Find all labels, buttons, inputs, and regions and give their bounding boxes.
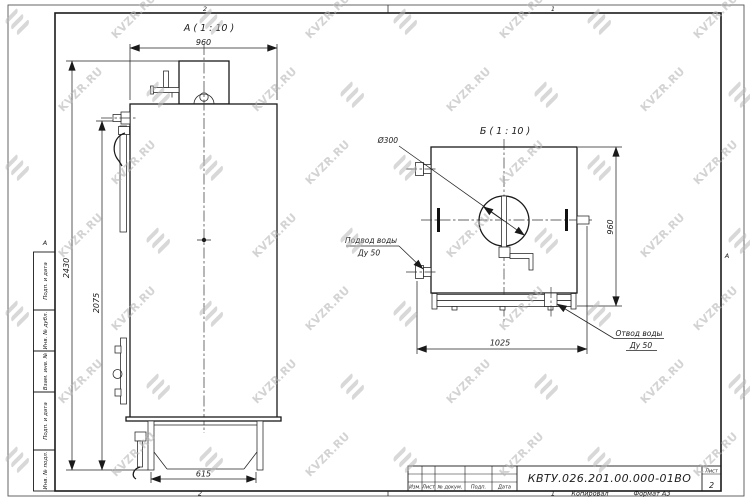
outlet-label-line1: Отвод воды bbox=[616, 329, 663, 338]
dim-2430: 2430 bbox=[62, 258, 71, 278]
right-stub bbox=[577, 216, 589, 224]
water-outlet-label: Отвод воды Ду 50 bbox=[557, 304, 664, 351]
col-doc: № докум. bbox=[437, 485, 463, 491]
view-a-title: А ( 1 : 10 ) bbox=[183, 23, 234, 34]
view-b: Б ( 1 : 10 ) bbox=[345, 126, 664, 354]
chimney-pipe-fitting bbox=[151, 71, 180, 98]
stamp-inv-dupl: Инв. № дубл. bbox=[43, 311, 49, 349]
dim-2075: 2075 bbox=[92, 293, 101, 313]
outlet-label-line2: Ду 50 bbox=[629, 341, 652, 350]
zone-top-2: 2 bbox=[203, 5, 207, 13]
stamp-sign-date-1: Подп. и дата bbox=[43, 262, 49, 300]
right-slot bbox=[565, 209, 568, 231]
dim-615: 615 bbox=[196, 470, 211, 479]
view-b-title: Б ( 1 : 10 ) bbox=[480, 126, 530, 137]
dim-960-right: 960 bbox=[606, 219, 615, 234]
left-slot bbox=[437, 208, 440, 232]
title-block: Изм. Лист № докум. Подп. Дата КВТУ.026.2… bbox=[408, 466, 721, 491]
drawing-page: 2 1 2 1 А А Копировал Формат А3 Подп. и … bbox=[0, 0, 750, 500]
hinge-assembly bbox=[113, 338, 127, 404]
dim-diameter-300: Ø300 bbox=[377, 136, 398, 145]
dim-960-top: 960 bbox=[196, 38, 211, 47]
lower-latch bbox=[133, 432, 146, 479]
stamp-sign-date-2: Подп. и дата bbox=[43, 402, 49, 440]
door-handle-assembly bbox=[114, 126, 129, 232]
col-date: Дата bbox=[497, 485, 511, 491]
base-pedestal bbox=[126, 417, 281, 470]
zone-row-right: А bbox=[724, 252, 729, 260]
side-stamps: Подп. и дата Инв. № дубл. Взам. инв. № П… bbox=[34, 252, 56, 491]
water-inlet-label: Подвод воды Ду 50 bbox=[345, 236, 423, 269]
inlet-label-line2: Ду 50 bbox=[357, 249, 380, 258]
drawing-designation: КВТУ.026.201.00.000-01ВО bbox=[528, 472, 692, 485]
drawing-sheet: 2 1 2 1 А А Копировал Формат А3 Подп. и … bbox=[0, 0, 750, 500]
col-sign: Подп. bbox=[471, 485, 486, 491]
sheet-label: Лист bbox=[704, 469, 719, 475]
zone-top-1: 1 bbox=[551, 5, 555, 13]
zone-bottom-2: 2 bbox=[198, 490, 202, 498]
dim-1025: 1025 bbox=[490, 339, 510, 348]
inlet-label-line1: Подвод воды bbox=[345, 236, 397, 245]
zone-row-left: А bbox=[42, 239, 47, 247]
stamp-vzam-inv: Взам. инв. № bbox=[43, 353, 49, 391]
col-list: Лист bbox=[421, 485, 436, 491]
view-a: А ( 1 : 10 ) bbox=[62, 23, 281, 483]
boiler-body bbox=[130, 104, 277, 418]
stamp-inv-podl: Инв. № подл. bbox=[43, 451, 49, 489]
sheet-value: 2 bbox=[709, 481, 714, 490]
col-izm: Изм. bbox=[409, 485, 421, 491]
